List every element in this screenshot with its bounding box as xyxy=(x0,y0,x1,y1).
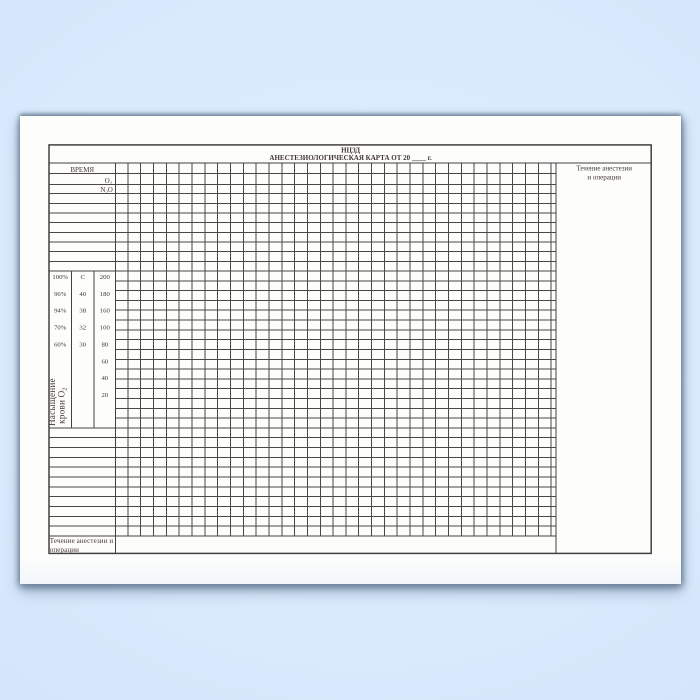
svg-text:32: 32 xyxy=(79,324,86,331)
svg-text:40: 40 xyxy=(101,375,108,382)
svg-text:30: 30 xyxy=(79,341,86,348)
svg-text:160: 160 xyxy=(99,307,110,314)
svg-text:70%: 70% xyxy=(54,324,67,331)
svg-text:100: 100 xyxy=(99,324,110,331)
svg-text:100%: 100% xyxy=(52,273,68,280)
svg-text:200: 200 xyxy=(99,273,110,280)
svg-text:60%: 60% xyxy=(54,341,67,348)
svg-text:38: 38 xyxy=(79,307,86,314)
svg-text:и операции: и операции xyxy=(587,173,621,181)
svg-text:180: 180 xyxy=(99,290,110,297)
svg-text:Насыщение: Насыщение xyxy=(46,378,56,426)
svg-text:96%: 96% xyxy=(54,290,67,297)
svg-text:Течение анестезии и: Течение анестезии и xyxy=(49,536,113,544)
svg-text:60: 60 xyxy=(101,358,108,365)
svg-text:80: 80 xyxy=(101,341,108,348)
svg-text:20: 20 xyxy=(101,391,108,398)
svg-text:40: 40 xyxy=(79,290,86,297)
svg-text:Течение анестезии: Течение анестезии xyxy=(576,164,632,172)
svg-text:АНЕСТЕЗИОЛОГИЧЕСКАЯ КАРТА ОТ 2: АНЕСТЕЗИОЛОГИЧЕСКАЯ КАРТА ОТ 20 ____ г. xyxy=(269,154,432,162)
svg-text:ВРЕМЯ: ВРЕМЯ xyxy=(70,166,94,174)
svg-text:крови О2: крови О2 xyxy=(56,387,68,423)
svg-text:НЦЗД: НЦЗД xyxy=(341,146,360,154)
svg-text:N2О: N2О xyxy=(100,186,112,195)
svg-text:94%: 94% xyxy=(54,307,67,314)
svg-text:О2: О2 xyxy=(104,177,112,186)
svg-text:операции: операции xyxy=(49,546,78,554)
svg-text:С: С xyxy=(80,273,85,280)
